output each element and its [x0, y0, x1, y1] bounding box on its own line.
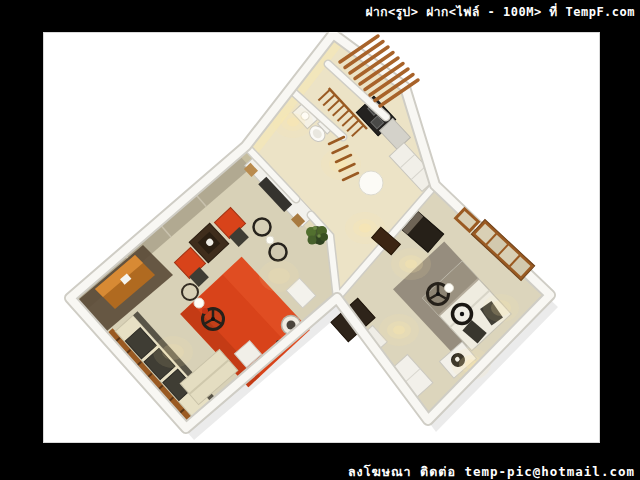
sphere-lamp-3 [445, 284, 454, 293]
bottom-watermark-text: ลงโฆษณา ติดต่อ temp-pic@hotmail.com [348, 462, 635, 480]
round-tray-table-2 [270, 244, 287, 261]
round-white-mat [359, 171, 383, 195]
photo-canvas [43, 32, 600, 443]
sphere-lamp-2 [194, 298, 204, 308]
wall-clock-center [460, 312, 464, 316]
top-watermark-text: ฝาก<รูป> ฝาก<ไฟล์ - 100M> ที่ TempF.com [365, 2, 635, 21]
red-ball-decor [202, 308, 208, 314]
photo-frame: ฝาก<รูป> ฝาก<ไฟล์ - 100M> ที่ TempF.com [0, 0, 640, 480]
round-tray-table-1 [254, 219, 271, 236]
sphere-lamp-1 [266, 236, 274, 244]
floorplan-render [43, 32, 600, 443]
